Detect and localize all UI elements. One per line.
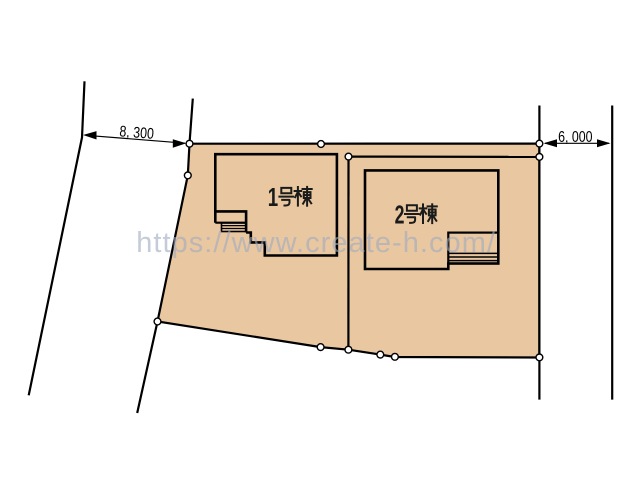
svg-text:https://www.create-h.com/: https://www.create-h.com/ — [136, 227, 496, 259]
svg-text:6, 000: 6, 000 — [558, 127, 593, 145]
svg-text:8, 300: 8, 300 — [119, 122, 155, 142]
svg-text:1: 1 — [268, 182, 278, 212]
svg-text:2: 2 — [395, 200, 405, 229]
